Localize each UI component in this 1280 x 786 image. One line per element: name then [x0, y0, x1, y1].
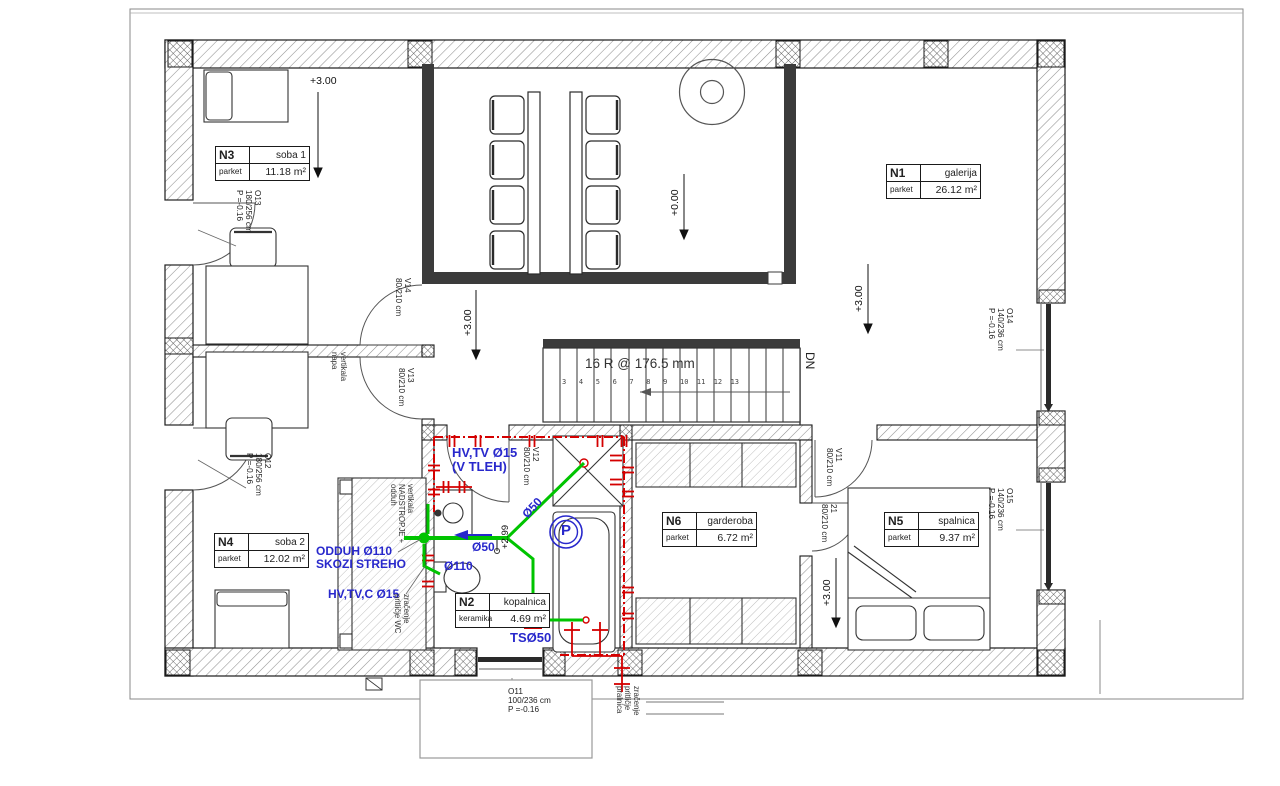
shaft-label-nadstropje: vertikala NADSTROPJE + odduh: [388, 484, 414, 543]
window-label-o15: O15 140/236 cm P =-0.16: [986, 488, 1014, 531]
chairs-right: [586, 96, 620, 269]
room-label-n5: N5 spalnica parket 9.37 m²: [884, 512, 979, 547]
room-name: soba 2: [249, 534, 308, 551]
room-area: 11.18 m²: [250, 164, 309, 180]
door-label-v13: V13 80/210 cm: [397, 368, 415, 406]
room-name: garderoba: [697, 513, 756, 530]
door-label-v11: V11 80/210 cm: [825, 448, 843, 486]
room-floor: parket: [885, 530, 919, 546]
level-hall: +3.00: [463, 309, 475, 336]
window-o14: [1037, 303, 1065, 412]
floor-plan-page: N3 soba 1 parket 11.18 m² N1 galerija pa…: [0, 0, 1280, 786]
room-label-n4: N4 soba 2 parket 12.02 m²: [214, 533, 309, 568]
chimney: [680, 60, 745, 125]
level-n3: +3.00: [310, 76, 337, 88]
stair-note: 16 R @ 176.5 mm: [585, 356, 695, 371]
vent-riser: [419, 533, 430, 544]
level-n5: +3.00: [822, 579, 834, 606]
door-label-v14: V14 80/210 cm: [394, 278, 412, 316]
room-area: 4.69 m²: [490, 611, 549, 627]
room-name: kopalnica: [490, 594, 549, 611]
pipe-label-hv-tv: HV,TV Ø15 (V TLEH): [452, 446, 517, 475]
room-id: N4: [215, 534, 249, 551]
shaft-label-napa: vertikala napa: [330, 352, 347, 381]
door-label-v12: V12 80/210 cm: [522, 447, 540, 485]
window-label-o13: O13 180/256 cm P =-0.16: [234, 190, 262, 233]
stair-dn-label: DN: [803, 352, 816, 369]
room-name: spalnica: [919, 513, 978, 530]
door-label-21: 21 80/210 cm: [820, 504, 838, 542]
shower: [553, 436, 623, 506]
room-floor: parket: [663, 530, 697, 546]
pipe-label-ts50: TSØ50: [510, 631, 551, 645]
room-id: N2: [456, 594, 490, 611]
room-id: N1: [887, 165, 921, 182]
void-room-furniture: [490, 92, 620, 274]
pipe-label-odduh: ODDUH Ø110 SKOZI STREHO: [316, 545, 406, 571]
room-area: 12.02 m²: [249, 551, 308, 567]
room-floor: parket: [216, 164, 250, 180]
window-o11: [477, 648, 543, 676]
chairs-left: [490, 96, 524, 269]
room-area: 26.12 m²: [921, 182, 980, 198]
level-gallery: +3.00: [854, 285, 866, 312]
room-floor: keramika: [456, 611, 490, 627]
pipe-label-d50-main: Ø50: [472, 541, 495, 554]
pump-letter: P: [561, 523, 571, 540]
door-v14: [360, 285, 422, 345]
room-label-n3: N3 soba 1 parket 11.18 m²: [215, 146, 310, 181]
room-label-n6: N6 garderoba parket 6.72 m²: [662, 512, 757, 547]
window-label-o14: O14 140/236 cm P =-0.16: [986, 308, 1014, 351]
stair-step-numbers: 3 4 5 6 7 8 9 10 11 12 13: [562, 379, 739, 387]
level-bath: +2.99: [501, 525, 512, 549]
room-id: N6: [663, 513, 697, 530]
shaft-label-pralnica-vent: zračenje pritličje pralnica: [614, 686, 640, 715]
shaft-label-wc-vent: zračenje pritličje WC: [393, 594, 410, 633]
pipe-label-hv-tv-c: HV,TV,C Ø15: [328, 588, 399, 601]
room-name: soba 1: [250, 147, 309, 164]
room-floor: parket: [215, 551, 249, 567]
level-void: +0.00: [670, 189, 682, 216]
room-id: N5: [885, 513, 919, 530]
pipe-label-d110: Ø110: [444, 560, 473, 573]
room-floor: parket: [887, 182, 921, 198]
room-area: 9.37 m²: [919, 530, 978, 546]
window-label-o12: O12 180/256 cm P =-0.16: [244, 453, 272, 496]
window-label-o11: O11 100/236 cm P =-0.16: [508, 687, 551, 715]
room-id: N3: [216, 147, 250, 164]
room-area: 6.72 m²: [697, 530, 756, 546]
room-label-n2: N2 kopalnica keramika 4.69 m²: [455, 593, 550, 628]
window-o15: [1037, 482, 1065, 591]
room-name: galerija: [921, 165, 980, 182]
floor-plan-drawing: [0, 0, 1280, 786]
room-label-n1: N1 galerija parket 26.12 m²: [886, 164, 981, 199]
